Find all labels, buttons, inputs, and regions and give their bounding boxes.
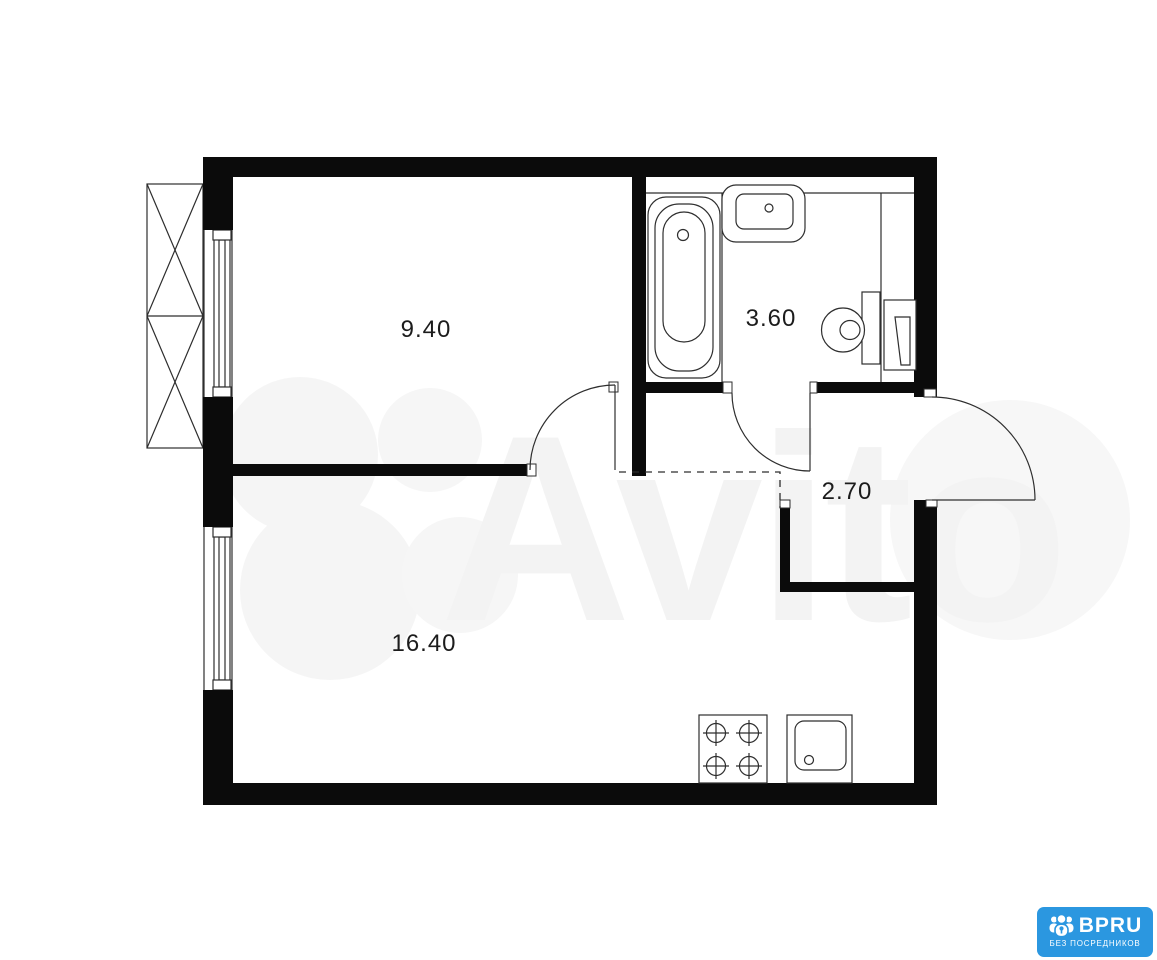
wall-hallway-bottom (780, 582, 914, 592)
wall-bedroom-bathroom (632, 177, 646, 476)
toilet-icon (822, 292, 881, 364)
watermark-text: Avito (440, 381, 1063, 677)
wash-basin-icon (722, 185, 805, 242)
wall-bathroom-bottom-left (646, 382, 723, 393)
wall-bedroom-living (233, 464, 527, 476)
badge-tagline-text: БЕЗ ПОСРЕДНИКОВ (1050, 939, 1141, 949)
wall-hallway-vertical (780, 508, 790, 592)
badge-top-row: BPRU (1048, 914, 1143, 937)
bathroom-area-label: 3.60 (746, 305, 797, 332)
kitchen-fixtures (699, 715, 852, 783)
kitchen-sink-icon (787, 715, 852, 783)
wall-right-lower (914, 500, 937, 805)
bedroom-window-icon (204, 230, 232, 397)
wall-left-bottom (203, 690, 233, 805)
wall-top (203, 157, 937, 177)
bpru-badge: BPRU БЕЗ ПОСРЕДНИКОВ (1037, 907, 1153, 957)
wall-bottom (203, 783, 937, 805)
living-room-area-label: 16.40 (391, 630, 456, 657)
floor-plan-drawing: Avito (0, 0, 1157, 960)
stove-4-burner-icon (699, 715, 767, 783)
bedroom-area-label: 9.40 (401, 316, 452, 343)
floor-plan-canvas: Avito (0, 0, 1157, 960)
bathroom-fixtures (646, 185, 916, 382)
balcony-icon (147, 184, 203, 448)
bathtub-icon (648, 197, 720, 378)
wall-right-upper (914, 157, 937, 397)
wall-bathroom-bottom-right (817, 382, 914, 393)
water-heater-icon (884, 300, 916, 370)
wall-left-middle (203, 397, 233, 527)
people-lock-icon (1048, 914, 1075, 937)
avito-watermark: Avito (222, 377, 1130, 680)
wall-left-top (203, 157, 233, 230)
badge-brand-text: BPRU (1079, 915, 1143, 937)
hallway-area-label: 2.70 (822, 478, 873, 505)
living-room-window-icon (204, 527, 232, 690)
